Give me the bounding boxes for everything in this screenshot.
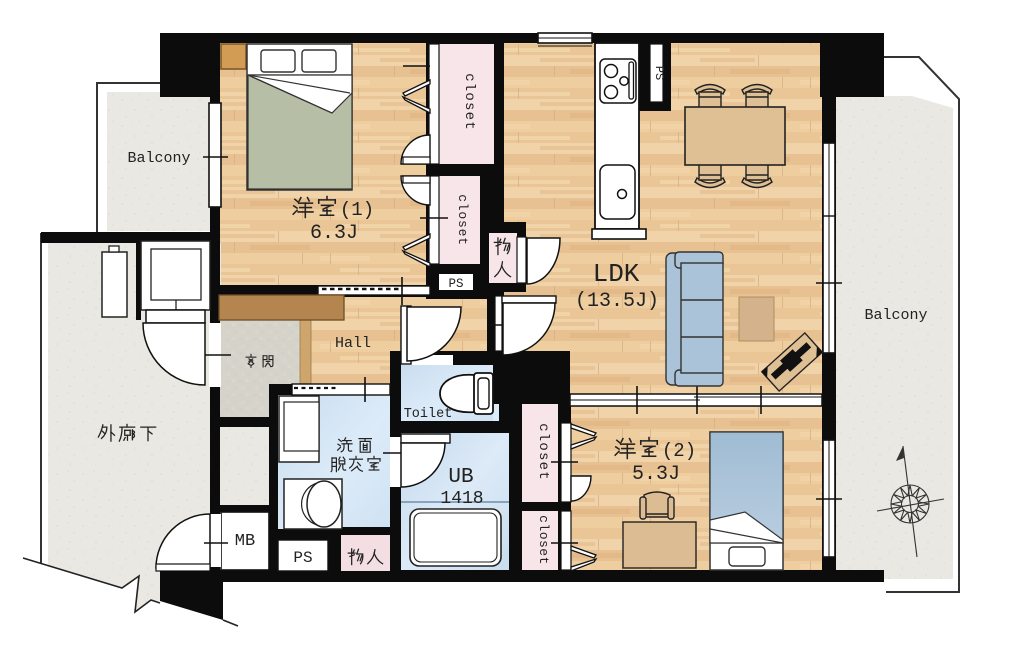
- svg-text:1418: 1418: [440, 489, 483, 509]
- svg-text:closet: closet: [461, 73, 477, 131]
- svg-text:PS: PS: [448, 277, 463, 291]
- svg-text:closet: closet: [535, 423, 551, 481]
- svg-text:Hall: Hall: [335, 335, 371, 352]
- svg-text:UB: UB: [448, 466, 473, 489]
- svg-text:(1): (1): [340, 199, 374, 221]
- svg-text:Balcony: Balcony: [127, 150, 190, 167]
- svg-text:closet: closet: [455, 194, 470, 246]
- svg-text:PS: PS: [652, 66, 666, 80]
- svg-text:Balcony: Balcony: [864, 307, 927, 324]
- svg-text:(2): (2): [662, 440, 696, 462]
- svg-text:MB: MB: [235, 532, 255, 551]
- svg-text:LDK: LDK: [593, 259, 640, 289]
- svg-text:Toilet: Toilet: [404, 407, 453, 422]
- svg-text:5.3J: 5.3J: [632, 463, 680, 486]
- svg-text:(13.5J): (13.5J): [575, 290, 659, 313]
- svg-text:PS: PS: [293, 549, 312, 567]
- svg-text:closet: closet: [536, 515, 551, 565]
- svg-text:6.3J: 6.3J: [310, 222, 358, 245]
